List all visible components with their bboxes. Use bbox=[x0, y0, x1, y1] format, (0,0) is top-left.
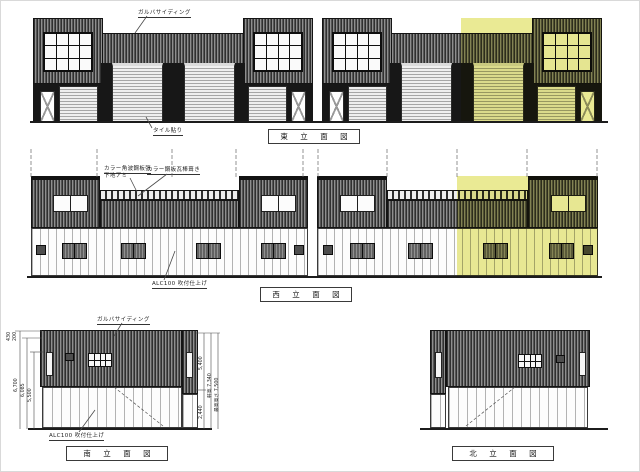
slot-window bbox=[186, 352, 193, 378]
dim-label: 430 bbox=[7, 332, 12, 341]
east-tile-note: タイル貼り bbox=[153, 126, 183, 136]
upper-window bbox=[53, 195, 88, 212]
north-elevation-building bbox=[430, 330, 590, 428]
clerestory-band bbox=[100, 190, 239, 200]
east-siding-note: ガルバサイディング bbox=[138, 8, 191, 18]
west-roof-note: カラー鋼板瓦棒葺き bbox=[147, 165, 200, 175]
entry-door bbox=[329, 91, 344, 122]
dim-label: 5,400 bbox=[199, 356, 204, 370]
grid-window bbox=[43, 32, 93, 72]
slot-window bbox=[435, 352, 442, 378]
window-pair bbox=[261, 243, 286, 259]
south-elevation-title: 南 立 面 図 bbox=[66, 446, 168, 461]
window-pair bbox=[483, 243, 508, 259]
ground-line-east bbox=[30, 121, 608, 123]
east-elevation-title: 東 立 面 図 bbox=[268, 129, 360, 144]
window-pair bbox=[62, 243, 87, 259]
upper-window bbox=[551, 195, 586, 212]
upper-window bbox=[340, 195, 375, 212]
roller-shutter bbox=[248, 86, 287, 122]
window-pair bbox=[549, 243, 574, 259]
dim-label: 200 bbox=[13, 332, 18, 341]
west-elevation-right-building bbox=[317, 176, 598, 276]
dim-label: 軒高 7,340 bbox=[206, 373, 213, 398]
grid-window bbox=[253, 32, 303, 72]
alc-lower-strip bbox=[430, 394, 446, 428]
grid-window bbox=[542, 32, 592, 72]
small-window bbox=[36, 245, 46, 255]
roller-shutter bbox=[184, 63, 235, 122]
alc-lower-wall bbox=[448, 387, 588, 428]
small-window bbox=[294, 245, 304, 255]
dim-label: 5,500 bbox=[28, 388, 33, 402]
roller-shutter bbox=[473, 63, 524, 122]
slot-window bbox=[579, 352, 586, 376]
siding-band bbox=[100, 200, 239, 228]
east-elevation-left-building bbox=[33, 18, 313, 122]
dim-label: 6,700 bbox=[14, 378, 19, 392]
small-window bbox=[323, 245, 333, 255]
west-elevation-title: 西 立 面 図 bbox=[260, 287, 352, 302]
paired-windows bbox=[88, 353, 112, 367]
roller-shutter bbox=[348, 86, 387, 122]
elevation-drawing-sheet: ガルバサイディング タイル貼り 東 立 面 図 カラー角波鋼板張 下地ア bbox=[0, 0, 640, 472]
small-window bbox=[65, 353, 74, 361]
window-pair bbox=[408, 243, 433, 259]
ground-line-north bbox=[420, 428, 608, 430]
slot-window bbox=[46, 352, 53, 376]
entry-door bbox=[580, 91, 595, 122]
small-window bbox=[556, 355, 565, 363]
dim-label: 最高高さ 7,500 bbox=[213, 378, 220, 412]
grid-window bbox=[332, 32, 382, 72]
roller-shutter bbox=[401, 63, 452, 122]
alc-lower-strip bbox=[182, 394, 198, 428]
entry-door bbox=[291, 91, 306, 122]
alc-lower-wall bbox=[42, 387, 182, 428]
window-pair bbox=[121, 243, 146, 259]
upper-window bbox=[261, 195, 296, 212]
roller-shutter bbox=[537, 86, 576, 122]
window-pair bbox=[350, 243, 375, 259]
window-pair bbox=[196, 243, 221, 259]
west-wall-note-line2: 下地アミ bbox=[104, 171, 128, 179]
clerestory-band bbox=[387, 190, 528, 200]
paired-windows bbox=[518, 354, 542, 368]
siding-band bbox=[387, 200, 528, 228]
south-elevation-building bbox=[40, 330, 198, 428]
south-siding-note: ガルバサイディング bbox=[97, 315, 150, 325]
west-elevation-left-building bbox=[31, 176, 308, 276]
south-alc-note: ALC100 吹付仕上げ bbox=[49, 431, 104, 441]
ground-line-south bbox=[28, 428, 212, 430]
ground-line-west bbox=[27, 276, 602, 278]
dim-label: 6,085 bbox=[21, 383, 26, 397]
roller-shutter bbox=[112, 63, 163, 122]
dim-label: 2,440 bbox=[199, 405, 204, 419]
east-elevation-right-building bbox=[322, 18, 602, 122]
small-window bbox=[583, 245, 593, 255]
north-elevation-title: 北 立 面 図 bbox=[452, 446, 554, 461]
roller-shutter bbox=[59, 86, 98, 122]
entry-door bbox=[40, 91, 55, 122]
west-alc-note: ALC100 吹付仕上げ bbox=[152, 279, 207, 289]
